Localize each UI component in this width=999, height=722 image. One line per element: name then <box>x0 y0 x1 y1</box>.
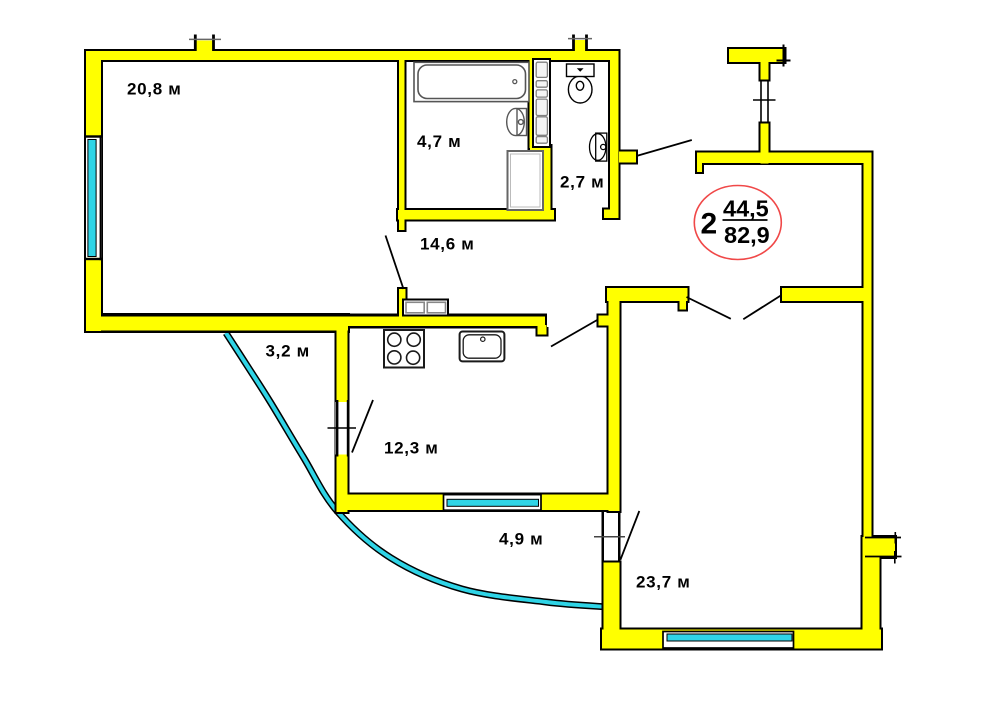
svg-text:12,3 м: 12,3 м <box>384 439 439 458</box>
svg-text:14,6 м: 14,6 м <box>420 235 475 254</box>
svg-text:23,7 м: 23,7 м <box>636 573 691 592</box>
svg-text:3,2 м: 3,2 м <box>266 342 310 361</box>
svg-text:82,9: 82,9 <box>724 222 770 248</box>
svg-text:2,7 м: 2,7 м <box>560 173 604 192</box>
svg-text:2: 2 <box>701 208 718 241</box>
svg-text:20,8 м: 20,8 м <box>127 80 182 99</box>
svg-text:4,7 м: 4,7 м <box>417 132 461 151</box>
svg-text:4,9 м: 4,9 м <box>499 530 543 549</box>
svg-text:44,5: 44,5 <box>723 196 769 222</box>
